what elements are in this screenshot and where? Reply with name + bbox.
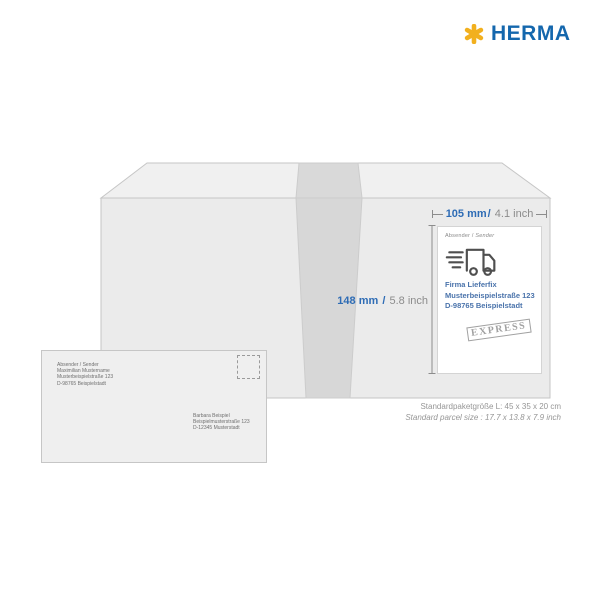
dimension-line-right xyxy=(536,214,546,215)
herma-asterisk-logo-icon xyxy=(464,24,484,44)
width-dimension: 105 mm/ 4.1 inch xyxy=(432,208,547,220)
address-line: Firma Lieferfix xyxy=(445,280,535,291)
address-line: Musterbeispielstraße 123 xyxy=(445,291,535,302)
height-dimension-label: 148 mm / 5.8 inch xyxy=(334,295,431,307)
parcel-size-en: Standard parcel size : 17.7 x 13.8 x 7.9… xyxy=(405,412,561,423)
delivery-truck-icon xyxy=(445,244,497,279)
dimension-line-left xyxy=(433,214,443,215)
brand-name: HERMA xyxy=(491,22,571,46)
envelope: Absender / Sender Maximilian Mustername … xyxy=(41,350,267,463)
packing-tape-top xyxy=(296,163,362,198)
envelope-recipient-line: D-12345 Musterstadt xyxy=(193,425,250,431)
envelope-sender-line: Musterbeispielstraße 123 xyxy=(57,374,113,380)
width-dimension-label: 105 mm/ 4.1 inch xyxy=(443,208,537,220)
postage-stamp-icon xyxy=(237,355,260,379)
address-line: D-98765 Beispielstadt xyxy=(445,301,535,312)
envelope-recipient-block: Barbara Beispiel Beispielmusterstraße 12… xyxy=(193,413,250,432)
herma-product-illustration: HERMA 105 mm/ 4.1 inch 148 mm / 5.8 inch… xyxy=(0,0,600,600)
envelope-sender-block: Absender / Sender Maximilian Mustername … xyxy=(57,362,113,387)
parcel-size-note: Standardpaketgröße L: 45 x 35 x 20 cm St… xyxy=(405,401,561,423)
express-stamp: EXPRESS xyxy=(466,319,531,342)
shipping-address: Firma Lieferfix Musterbeispielstraße 123… xyxy=(445,280,535,312)
parcel-size-de: Standardpaketgröße L: 45 x 35 x 20 cm xyxy=(405,401,561,412)
envelope-sender-line: D-98765 Beispielstadt xyxy=(57,381,113,387)
dimension-tick-right xyxy=(546,210,547,218)
herma-logo: HERMA xyxy=(464,22,571,46)
shipping-label: Absender / Sender Firma Lieferfix Muster… xyxy=(437,226,542,374)
shipping-label-header: Absender / Sender xyxy=(445,233,494,239)
